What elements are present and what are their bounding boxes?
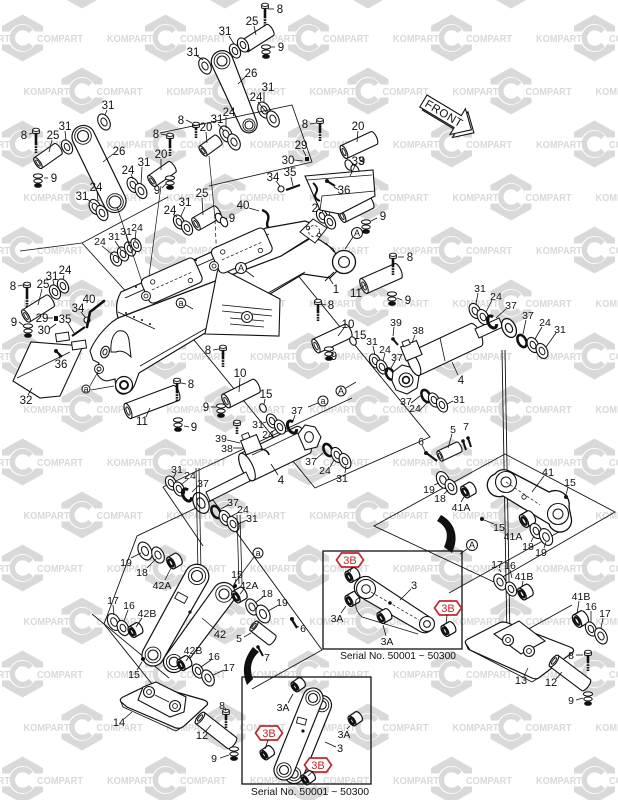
svg-text:3A: 3A — [381, 636, 394, 648]
svg-text:8: 8 — [277, 4, 283, 16]
svg-text:3B: 3B — [311, 760, 324, 772]
svg-text:24: 24 — [319, 465, 331, 477]
svg-text:41A: 41A — [504, 531, 523, 543]
svg-text:31: 31 — [102, 100, 115, 112]
svg-text:40: 40 — [237, 200, 250, 212]
svg-text:9: 9 — [154, 185, 160, 197]
svg-text:35: 35 — [284, 167, 297, 179]
svg-text:24: 24 — [262, 429, 274, 441]
svg-text:42: 42 — [214, 629, 226, 641]
svg-text:24: 24 — [250, 92, 263, 104]
svg-text:18: 18 — [261, 588, 273, 600]
svg-text:31: 31 — [474, 283, 486, 295]
svg-text:9: 9 — [380, 211, 386, 223]
svg-text:8: 8 — [568, 650, 574, 662]
svg-text:37: 37 — [391, 352, 403, 364]
svg-text:34: 34 — [267, 172, 280, 184]
svg-text:7: 7 — [463, 421, 469, 433]
svg-text:25: 25 — [246, 16, 259, 28]
svg-text:13: 13 — [515, 675, 527, 687]
svg-text:15: 15 — [354, 330, 367, 342]
svg-text:24: 24 — [94, 236, 106, 248]
svg-text:9: 9 — [405, 295, 411, 307]
svg-text:24: 24 — [90, 182, 103, 194]
svg-text:9: 9 — [191, 422, 197, 434]
svg-text:8: 8 — [10, 281, 16, 293]
svg-text:19: 19 — [276, 597, 288, 609]
svg-text:8: 8 — [153, 129, 159, 141]
svg-text:17: 17 — [599, 608, 611, 620]
svg-text:18: 18 — [434, 493, 446, 505]
svg-text:24: 24 — [539, 317, 551, 329]
svg-text:A: A — [469, 540, 475, 550]
svg-text:37: 37 — [522, 310, 534, 322]
svg-text:8: 8 — [188, 379, 194, 391]
svg-text:31: 31 — [366, 336, 378, 348]
svg-text:6: 6 — [418, 436, 424, 448]
svg-text:8: 8 — [302, 119, 308, 131]
svg-text:8: 8 — [178, 115, 184, 127]
svg-text:A: A — [338, 386, 344, 396]
svg-text:19: 19 — [535, 547, 547, 559]
svg-text:17: 17 — [223, 662, 235, 674]
svg-text:15: 15 — [260, 389, 273, 401]
svg-text:8: 8 — [407, 252, 413, 264]
svg-text:41A: 41A — [452, 502, 471, 514]
svg-text:41: 41 — [542, 467, 554, 479]
svg-text:8: 8 — [205, 345, 211, 357]
svg-text:31: 31 — [262, 82, 275, 94]
svg-text:31: 31 — [187, 47, 200, 59]
svg-text:1: 1 — [333, 284, 339, 296]
svg-text:26: 26 — [113, 146, 126, 158]
svg-text:14: 14 — [113, 717, 125, 729]
svg-text:42B: 42B — [138, 608, 157, 620]
svg-text:37: 37 — [305, 456, 317, 468]
svg-text:9: 9 — [203, 402, 209, 414]
svg-text:7: 7 — [264, 652, 270, 664]
svg-text:40: 40 — [83, 294, 96, 306]
svg-text:9: 9 — [568, 695, 574, 707]
svg-text:3B: 3B — [343, 555, 356, 567]
svg-text:9: 9 — [11, 317, 17, 329]
svg-text:16: 16 — [123, 600, 135, 612]
svg-text:42A: 42A — [153, 580, 172, 592]
svg-text:24: 24 — [409, 403, 421, 415]
svg-text:8: 8 — [328, 300, 334, 312]
svg-text:31: 31 — [171, 464, 183, 476]
svg-text:A: A — [354, 228, 360, 238]
svg-text:17: 17 — [491, 559, 503, 571]
svg-text:a: a — [83, 384, 88, 394]
svg-text:5: 5 — [450, 424, 456, 436]
svg-text:24: 24 — [122, 165, 135, 177]
svg-text:42A: 42A — [240, 580, 259, 592]
svg-text:36: 36 — [55, 359, 68, 371]
svg-text:18: 18 — [522, 541, 534, 553]
svg-text:39: 39 — [390, 317, 402, 329]
svg-text:37: 37 — [291, 405, 303, 417]
svg-text:25: 25 — [47, 130, 60, 142]
svg-text:4: 4 — [278, 475, 285, 487]
svg-text:3: 3 — [411, 580, 417, 592]
svg-text:15: 15 — [128, 669, 140, 681]
svg-text:12: 12 — [545, 677, 557, 689]
svg-text:38: 38 — [221, 443, 233, 455]
svg-text:9: 9 — [229, 213, 235, 225]
svg-text:4: 4 — [458, 375, 465, 387]
svg-text:30: 30 — [282, 155, 295, 167]
svg-text:a: a — [255, 548, 260, 558]
svg-text:A: A — [238, 263, 244, 273]
svg-text:18: 18 — [136, 567, 148, 579]
svg-text:41B: 41B — [515, 571, 534, 583]
svg-text:38: 38 — [412, 325, 424, 337]
svg-text:24: 24 — [490, 291, 502, 303]
svg-text:33: 33 — [352, 156, 365, 168]
svg-text:31: 31 — [76, 191, 89, 203]
svg-text:31: 31 — [46, 271, 59, 283]
svg-text:12: 12 — [196, 730, 208, 742]
svg-text:3: 3 — [337, 743, 343, 755]
svg-text:31: 31 — [336, 473, 348, 485]
svg-text:15: 15 — [564, 477, 576, 489]
svg-text:3A: 3A — [338, 729, 351, 741]
svg-text:a: a — [178, 298, 183, 308]
svg-text:31: 31 — [108, 231, 120, 243]
svg-text:36: 36 — [338, 185, 351, 197]
svg-text:37: 37 — [505, 300, 517, 312]
svg-text:3B: 3B — [262, 728, 275, 740]
svg-text:Serial No. 50001 ~ 50300: Serial No. 50001 ~ 50300 — [251, 787, 369, 798]
svg-text:26: 26 — [245, 68, 258, 80]
svg-text:Serial No. 50001 ~ 50300: Serial No. 50001 ~ 50300 — [340, 651, 456, 662]
svg-text:29: 29 — [295, 140, 308, 152]
svg-text:8: 8 — [21, 130, 27, 142]
svg-text:24: 24 — [184, 470, 196, 482]
svg-text:5: 5 — [236, 633, 242, 645]
svg-text:9: 9 — [278, 42, 284, 54]
svg-text:9: 9 — [211, 753, 217, 765]
svg-text:6: 6 — [300, 623, 306, 635]
svg-text:31: 31 — [138, 157, 151, 169]
svg-text:8: 8 — [219, 700, 225, 712]
svg-text:35: 35 — [59, 314, 72, 326]
svg-text:24: 24 — [131, 222, 143, 234]
svg-text:31: 31 — [554, 324, 566, 336]
svg-text:42B: 42B — [184, 645, 203, 657]
svg-text:11: 11 — [350, 288, 362, 300]
svg-text:11: 11 — [136, 416, 148, 428]
svg-text:24: 24 — [59, 265, 72, 277]
svg-text:a: a — [320, 396, 325, 406]
svg-text:32: 32 — [20, 395, 33, 407]
svg-text:9: 9 — [51, 173, 57, 185]
svg-text:30: 30 — [38, 325, 51, 337]
svg-text:31: 31 — [453, 394, 465, 406]
svg-text:3B: 3B — [441, 603, 454, 615]
svg-text:9: 9 — [331, 351, 337, 363]
svg-text:29: 29 — [36, 313, 49, 325]
svg-text:3A: 3A — [277, 702, 290, 714]
svg-text:19: 19 — [120, 557, 132, 569]
svg-text:31: 31 — [246, 513, 258, 525]
svg-text:3A: 3A — [331, 613, 344, 625]
